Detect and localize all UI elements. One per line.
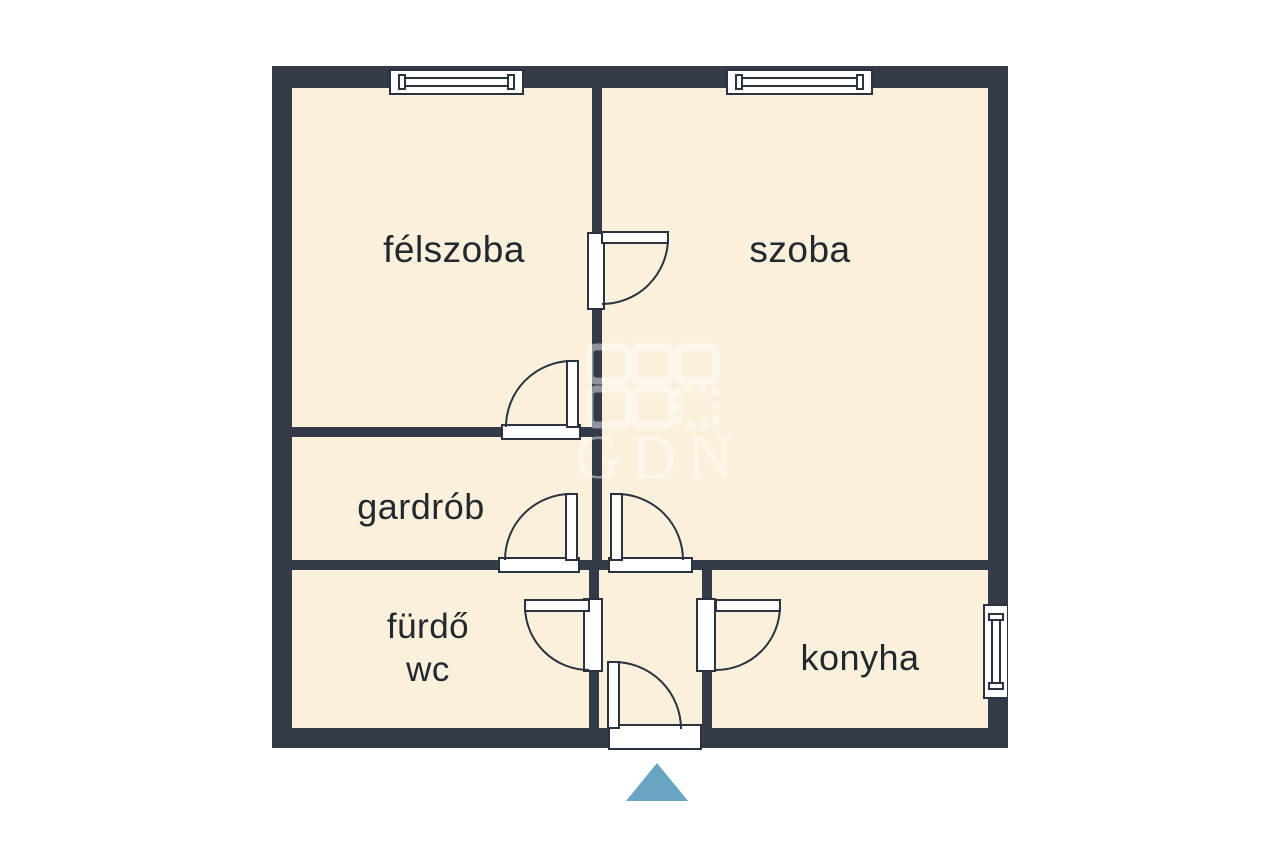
door-opening-konyha <box>696 598 716 672</box>
wall-felszoba-szoba <box>592 88 602 570</box>
door-opening-szoba <box>587 232 605 310</box>
room-label-felszoba: félszoba <box>383 229 525 271</box>
door-opening-szoba-hall <box>608 557 693 573</box>
door-opening-felszoba <box>501 424 581 440</box>
entrance-marker <box>626 763 688 801</box>
room-label-szoba: szoba <box>749 229 850 271</box>
room-label-konyha: konyha <box>800 637 919 679</box>
floor-plan: GDN félszoba szoba gardrób fürdő wc kony… <box>272 66 1008 748</box>
room-label-wc: wc <box>406 650 450 690</box>
entrance-door-opening <box>608 724 702 750</box>
room-label-furdo: fürdő <box>387 607 469 647</box>
door-opening-furdo <box>583 598 603 672</box>
room-label-gardrob: gardrób <box>357 486 485 528</box>
door-opening-gardrob <box>498 557 580 573</box>
floorplan-page: GDN félszoba szoba gardrób fürdő wc kony… <box>0 0 1280 853</box>
